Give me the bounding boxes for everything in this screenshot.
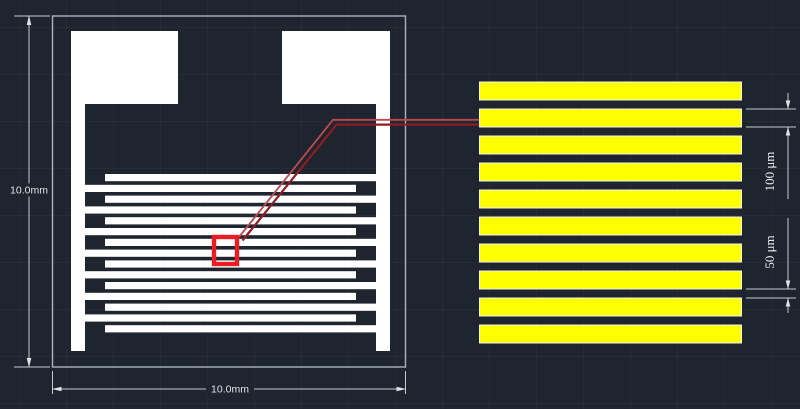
finger xyxy=(105,260,377,267)
stripe xyxy=(480,136,742,154)
electrode-width-label: 100 μm xyxy=(762,152,777,192)
left-contact-pad xyxy=(71,31,178,104)
finger xyxy=(105,196,377,203)
arrow-up-icon xyxy=(786,127,791,136)
finger xyxy=(105,174,377,181)
detail-inset: 100 μm 50 μm xyxy=(480,82,797,343)
arrow-left-icon xyxy=(52,387,62,392)
stripe xyxy=(480,163,742,181)
stripe xyxy=(480,190,742,208)
left-bus-bar xyxy=(71,104,85,351)
finger xyxy=(84,228,356,235)
right-bus-bar xyxy=(376,104,390,351)
stripe xyxy=(480,82,742,100)
stripe xyxy=(480,244,742,262)
finger xyxy=(105,304,377,311)
right-contact-pad xyxy=(282,31,390,104)
finger xyxy=(105,282,377,289)
arrow-up-icon xyxy=(27,16,32,26)
stripe xyxy=(480,217,742,235)
interdigitated-fingers xyxy=(84,174,377,332)
finger xyxy=(84,185,356,192)
stripe xyxy=(480,109,742,127)
gap-width-dimension: 50 μm xyxy=(746,218,796,313)
device-drawing: 10.0mm 10.0mm xyxy=(10,16,479,396)
stripe xyxy=(480,325,742,343)
finger xyxy=(84,206,356,213)
finger xyxy=(84,293,356,300)
finger xyxy=(84,271,356,278)
arrow-down-icon xyxy=(27,358,32,368)
electrode-width-dimension: 100 μm xyxy=(746,93,796,199)
finger xyxy=(105,239,377,246)
height-dimension-label: 10.0mm xyxy=(10,185,48,197)
cad-viewport[interactable]: 10.0mm 10.0mm xyxy=(0,0,800,409)
height-dimension: 10.0mm xyxy=(10,16,50,368)
arrow-down-icon xyxy=(786,281,791,290)
arrow-up-icon xyxy=(786,298,791,307)
arrow-right-icon xyxy=(397,387,407,392)
stripe xyxy=(480,298,742,316)
finger xyxy=(84,314,356,321)
arrow-down-icon xyxy=(786,101,791,110)
electrode-stripes xyxy=(480,82,742,343)
cad-drawing: 10.0mm 10.0mm xyxy=(0,0,800,409)
width-dimension-label: 10.0mm xyxy=(211,384,249,396)
gap-width-label: 50 μm xyxy=(762,235,777,268)
stripe xyxy=(480,271,742,289)
width-dimension: 10.0mm xyxy=(52,371,406,396)
finger xyxy=(105,325,377,332)
finger xyxy=(84,250,356,257)
finger xyxy=(105,217,377,224)
